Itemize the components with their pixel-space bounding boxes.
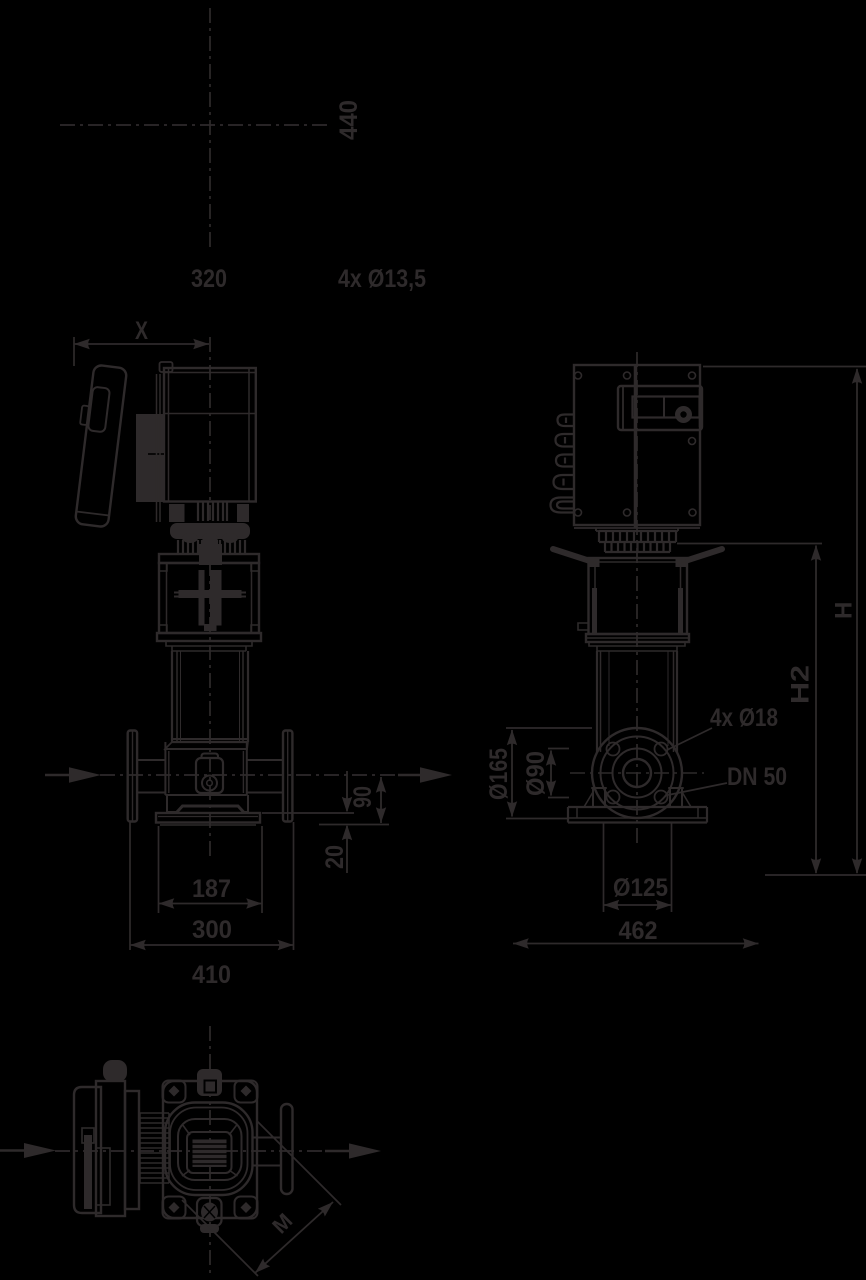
svg-text:Ø90: Ø90 — [522, 751, 550, 796]
svg-text:X: X — [135, 317, 148, 345]
svg-text:4x Ø13,5: 4x Ø13,5 — [338, 265, 426, 293]
svg-text:4x Ø18: 4x Ø18 — [710, 704, 778, 732]
svg-text:20: 20 — [321, 845, 349, 869]
svg-text:300: 300 — [192, 916, 232, 944]
svg-text:H: H — [831, 602, 858, 619]
svg-text:410: 410 — [192, 961, 231, 989]
svg-text:DN 50: DN 50 — [727, 763, 787, 791]
svg-text:H2: H2 — [787, 665, 815, 704]
svg-text:320: 320 — [191, 265, 227, 293]
svg-text:M: M — [268, 1209, 298, 1239]
svg-text:462: 462 — [619, 917, 658, 945]
svg-text:440: 440 — [335, 100, 363, 140]
svg-text:Ø125: Ø125 — [613, 874, 668, 902]
svg-text:Ø165: Ø165 — [485, 748, 513, 800]
svg-text:187: 187 — [192, 875, 231, 903]
svg-text:90: 90 — [349, 786, 377, 808]
